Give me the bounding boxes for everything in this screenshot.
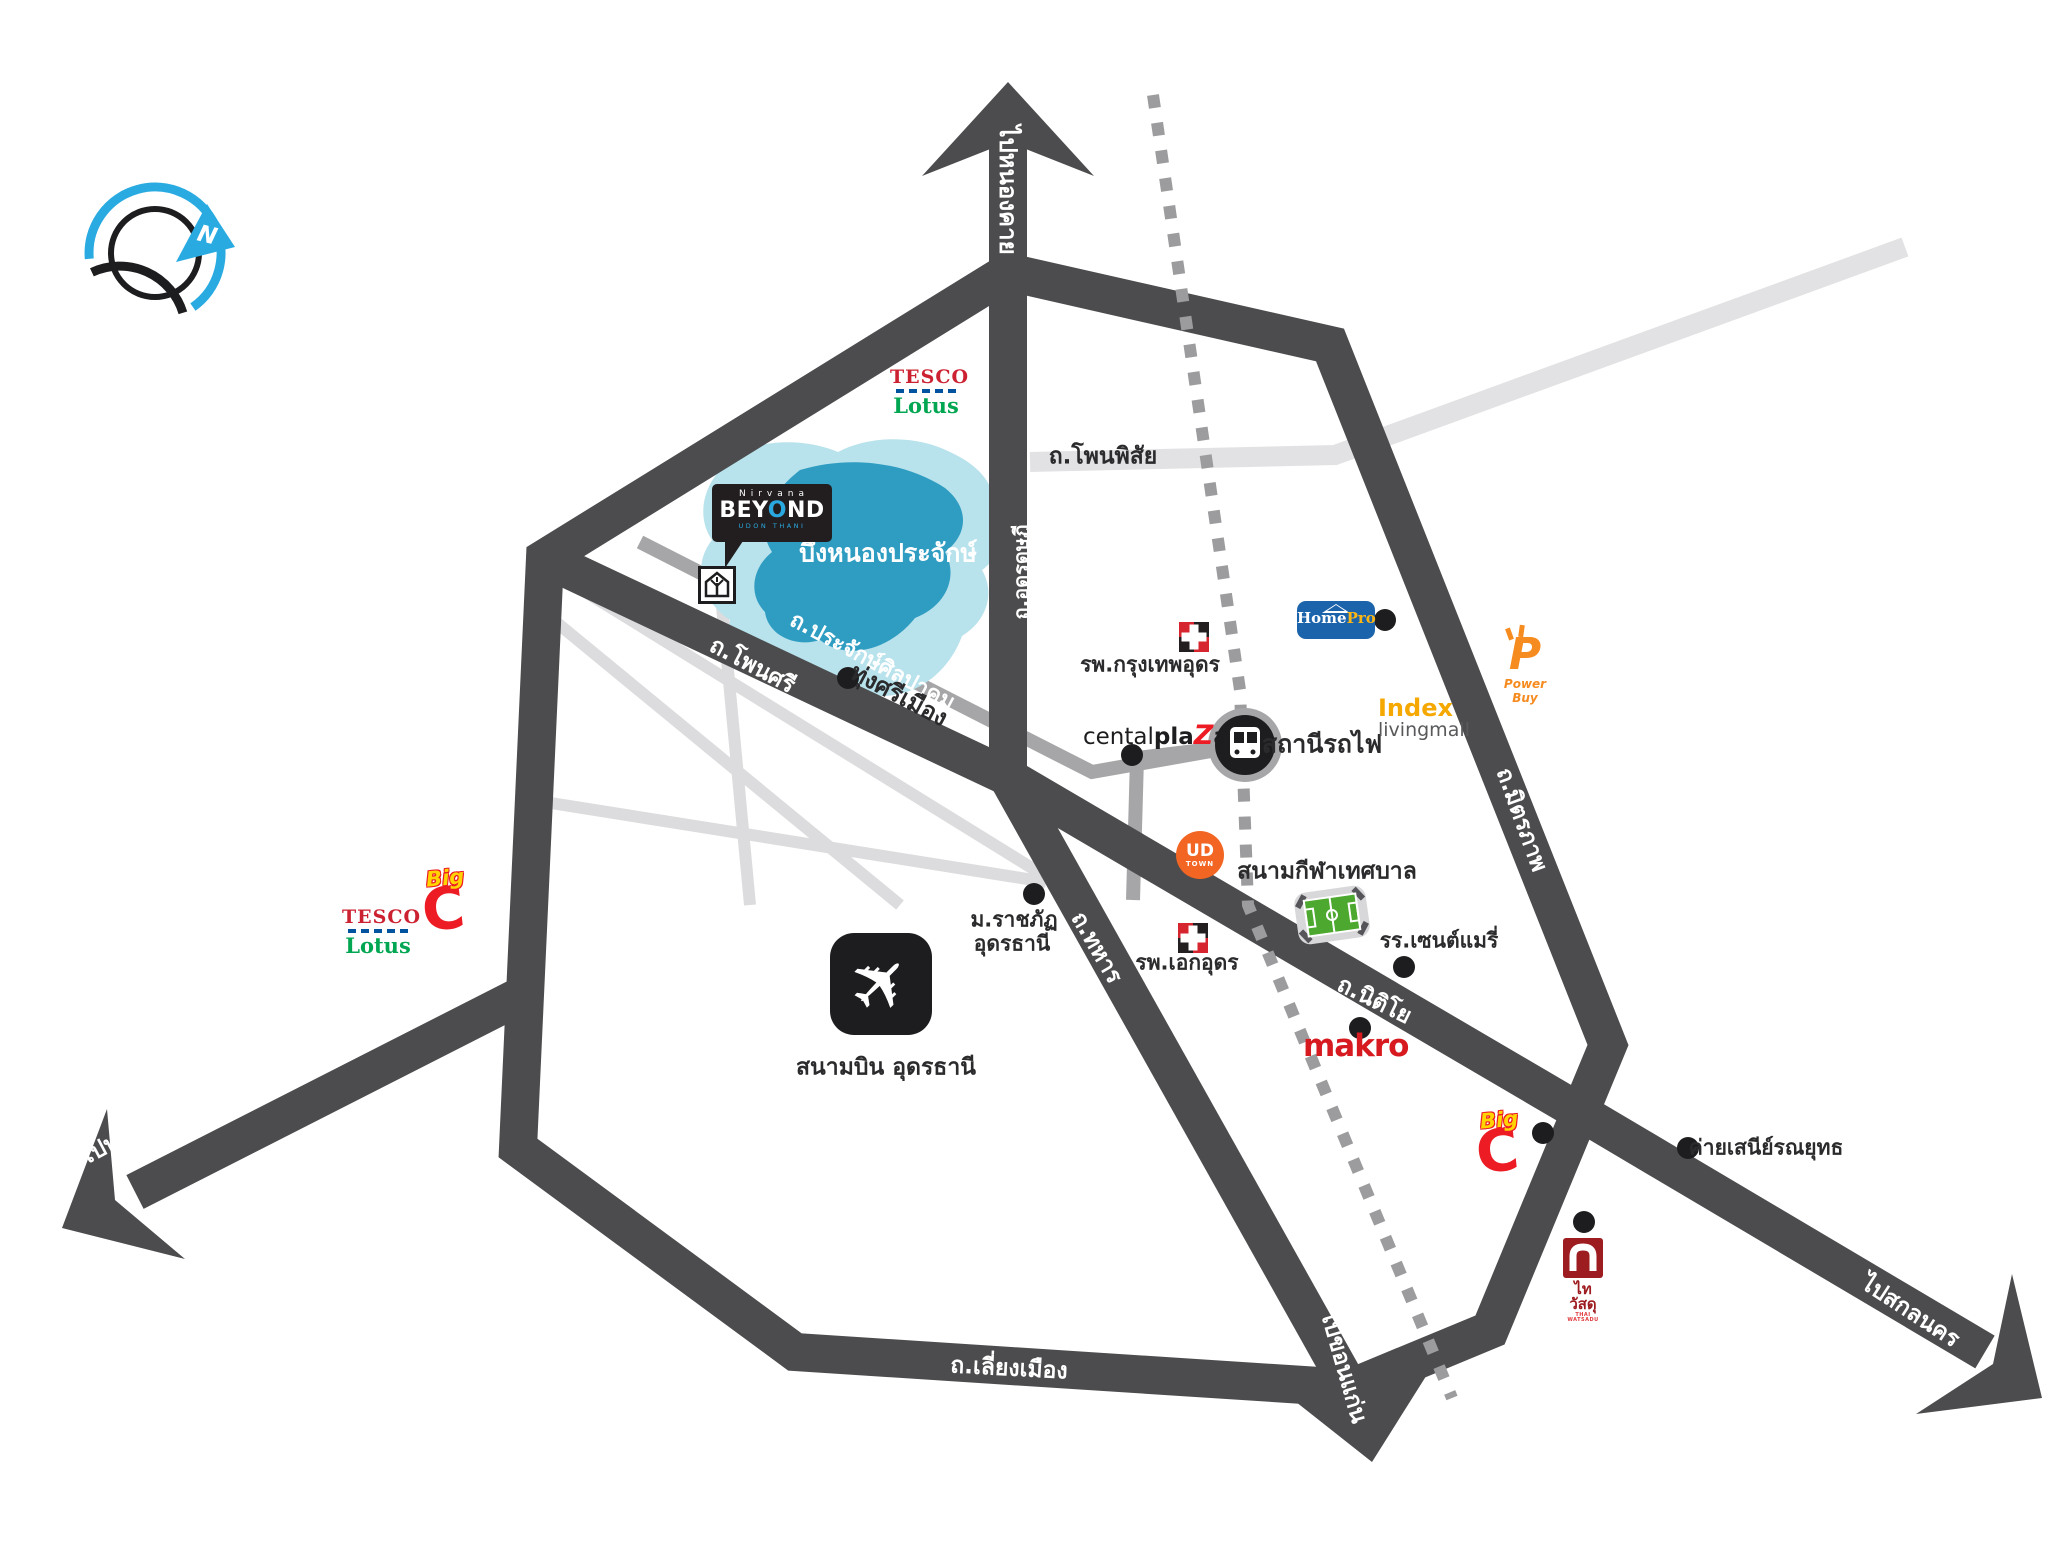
tesco-lotus-logo-north: TESCO Lotus <box>890 368 962 416</box>
lake-label: บึงหนองประจักษ์ <box>799 541 977 566</box>
nirvana-beyond-logo: Nirvana BEYOND UDON THANI <box>712 484 832 542</box>
house-tree-icon <box>701 569 733 601</box>
road-label-phon-phisai: ถ.โพนพิสัย <box>1049 446 1158 469</box>
map-canvas <box>0 0 2048 1555</box>
big-c-word: Big <box>1479 1108 1519 1132</box>
tesco-wordmark: TESCO <box>890 368 962 387</box>
st-mary-school-label: รร.เซนต์แมรี่ <box>1380 931 1499 952</box>
makro-logo: makro <box>1303 1031 1408 1062</box>
beyond-blue-o: O <box>768 498 787 523</box>
aek-udon-hospital-label: รพ.เอกอุดร <box>1135 953 1238 974</box>
thai-watsadu-icon <box>1563 1238 1603 1278</box>
rajabhat-label-line2: อุดรธานี <box>974 934 1051 955</box>
thai-watsadu-logo: ไทวัสดุ THAI WATSADU <box>1561 1280 1605 1323</box>
beyond-wordmark: BEYOND <box>712 499 832 522</box>
udon-thani-subtext: UDON THANI <box>712 522 832 530</box>
central-a-text: a <box>1213 724 1229 750</box>
power-buy-logo: P Power Buy <box>1493 634 1557 705</box>
phon-phisai-road <box>1030 247 1905 462</box>
dot-thai-watsadu <box>1573 1211 1595 1233</box>
beyond-text-left: BEY <box>719 498 767 523</box>
power-buy-wordmark: Power Buy <box>1493 677 1557 705</box>
ud-town-logo: UD TOWN <box>1176 831 1224 879</box>
big-c-logo-west: C Big <box>420 876 478 942</box>
index-living-mall-logo: Index livingmall <box>1378 696 1470 740</box>
dot-rajabhat <box>1023 883 1045 905</box>
dot-st-mary <box>1393 956 1415 978</box>
location-map: N ไปหนองคาย ไปหนองบัวลำภู ไปขอนแก่น ไปสก… <box>0 0 2048 1555</box>
bangkok-hospital-icon <box>1179 622 1209 652</box>
index-wordmark: Index <box>1378 696 1470 720</box>
rajabhat-label-line1: ม.ราชภัฏ <box>970 910 1057 931</box>
big-c-word: Big <box>425 866 465 890</box>
thai-watsadu-wordmark: ไทวัสดุ <box>1561 1282 1605 1312</box>
homepro-home-text: Home <box>1297 609 1347 627</box>
homepro-logo: HomePro <box>1297 601 1375 639</box>
central-text: cental <box>1083 724 1154 750</box>
central-z-mark: Z <box>1194 720 1214 751</box>
train-station-label: สถานีรถไฟ <box>1262 732 1382 757</box>
central-pla-text: pla <box>1154 724 1194 750</box>
dot-bigc-east <box>1532 1122 1554 1144</box>
thai-watsadu-subtext: THAI WATSADU <box>1561 1313 1605 1323</box>
central-plaza-logo: centalplaZa <box>1083 722 1229 749</box>
lotus-wordmark: Lotus <box>890 395 962 416</box>
tesco-wordmark: TESCO <box>342 908 414 927</box>
power-buy-p-mark: P <box>1493 634 1557 676</box>
town-text: TOWN <box>1186 861 1214 868</box>
dot-homepro <box>1374 609 1396 631</box>
bubble-pointer <box>725 541 743 568</box>
aek-udon-hospital-icon <box>1178 923 1208 953</box>
road-label-liang-mueang: ถ.เลี่ยงเมือง <box>950 1354 1068 1383</box>
airplane-icon: ✈ <box>833 936 929 1032</box>
road-label-udon-dutsadi: ถ.อุดรดุษฎี <box>1011 524 1031 619</box>
stadium-icon <box>1293 884 1372 946</box>
tesco-lotus-logo-west: TESCO Lotus <box>342 908 414 956</box>
nirvana-site-icon <box>698 566 736 604</box>
army-camp-label: ค่ายเสนีย์รณยุทธ <box>1689 1138 1844 1159</box>
ud-text: UD <box>1186 843 1214 860</box>
arrow-label-nong-khai: ไปหนองคาย <box>996 125 1020 254</box>
livingmall-wordmark: livingmall <box>1378 721 1470 740</box>
beyond-text-right: ND <box>787 498 825 523</box>
big-c-logo-east: C Big <box>1474 1118 1532 1184</box>
homepro-pro-text: Pro <box>1347 609 1376 627</box>
nirvana-beyond-bubble: Nirvana BEYOND UDON THANI <box>712 484 832 542</box>
bangkok-hospital-label: รพ.กรุงเทพอุดร <box>1080 655 1220 676</box>
stadium-label: สนามกีฬาเทศบาล <box>1237 861 1417 884</box>
lotus-wordmark: Lotus <box>342 935 414 956</box>
airport-label: สนามบิน อุดรธานี <box>796 1057 976 1080</box>
airport-icon: ✈ <box>830 933 932 1035</box>
